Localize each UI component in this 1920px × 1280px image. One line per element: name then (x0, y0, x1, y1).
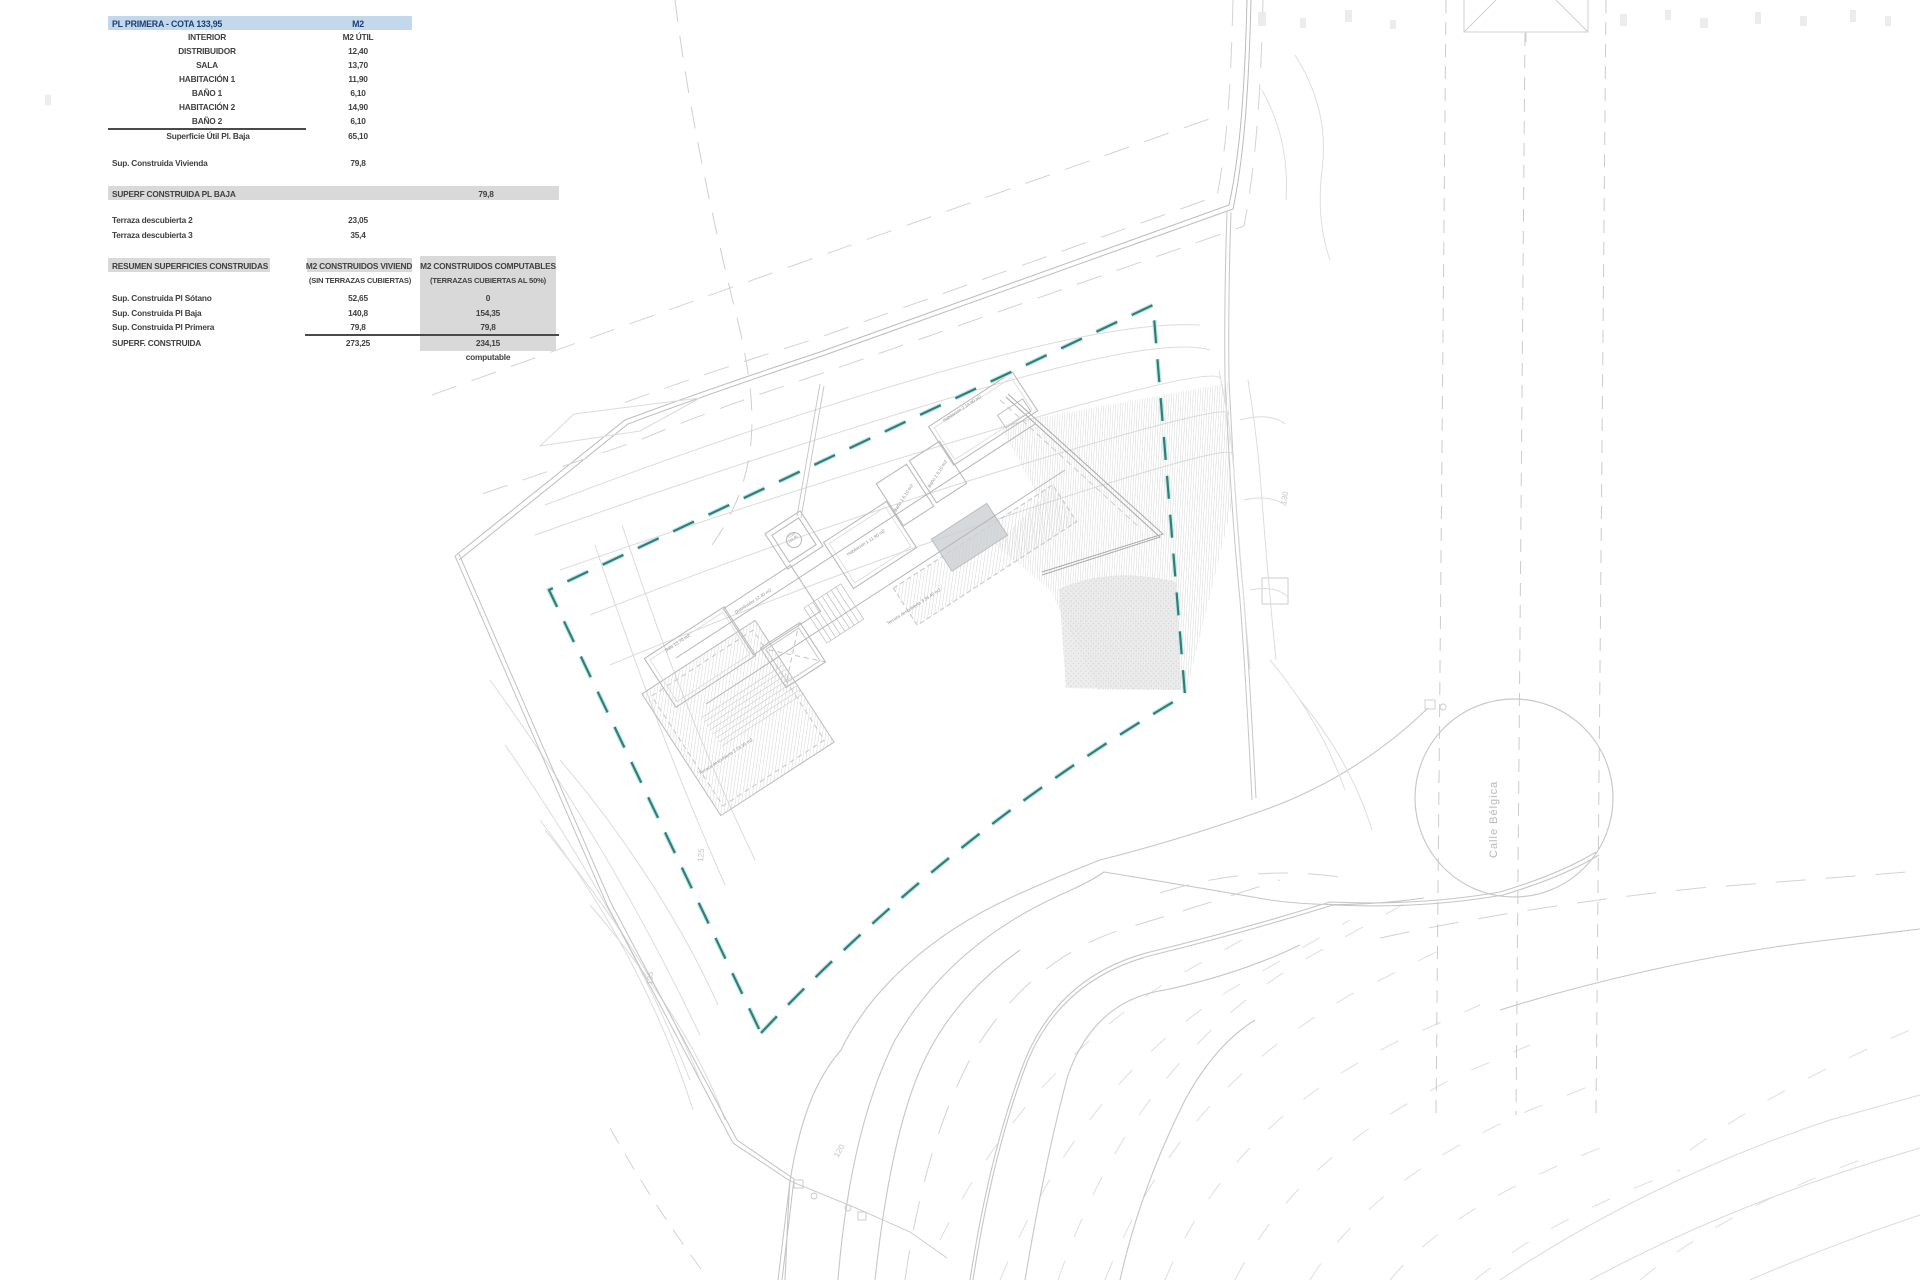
svg-text:120: 120 (832, 1142, 847, 1159)
svg-text:Baño 1 6.10 m2: Baño 1 6.10 m2 (893, 483, 915, 513)
svg-text:130: 130 (1279, 490, 1290, 505)
svg-text:Calle Bélgica: Calle Bélgica (1488, 781, 1500, 858)
svg-text:Baño 2 6.10 m2: Baño 2 6.10 m2 (927, 459, 949, 489)
svg-text:Distribuidor 12.40 m2: Distribuidor 12.40 m2 (734, 587, 773, 615)
svg-text:135: 135 (645, 971, 655, 986)
svg-text:Habitación 1 11.90 m2: Habitación 1 11.90 m2 (846, 528, 887, 557)
svg-text:125: 125 (696, 848, 706, 863)
